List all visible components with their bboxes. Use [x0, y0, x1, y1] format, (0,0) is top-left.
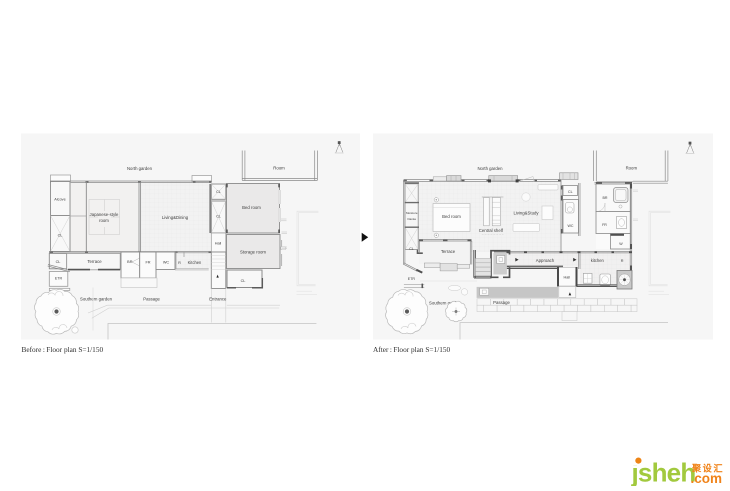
svg-text:Moisture: Moisture [406, 211, 418, 215]
svg-text:Storage room: Storage room [240, 250, 266, 255]
svg-text:W: W [619, 242, 623, 246]
svg-text:CL: CL [216, 190, 221, 194]
svg-text:Living&Study: Living&Study [513, 210, 539, 215]
svg-text:FR: FR [145, 260, 150, 264]
svg-text:.com: .com [691, 471, 723, 486]
svg-text:Bed room: Bed room [442, 214, 461, 219]
svg-text:Central shelf: Central shelf [479, 228, 504, 233]
svg-text:Danke: Danke [407, 217, 416, 221]
svg-text:After : Floor plan S=1/150: After : Floor plan S=1/150 [373, 345, 451, 354]
svg-text:R: R [621, 259, 624, 263]
svg-text:Kitchen: Kitchen [188, 260, 202, 265]
svg-text:North garden: North garden [477, 166, 503, 171]
svg-text:CL: CL [241, 279, 246, 283]
svg-text:WC: WC [163, 261, 170, 265]
svg-text:Before : Floor plan S=1/150: Before : Floor plan S=1/150 [22, 345, 104, 354]
svg-text:CL: CL [568, 190, 573, 194]
svg-text:Passage: Passage [143, 296, 160, 301]
svg-text:Alcove: Alcove [54, 198, 65, 202]
svg-text:CL: CL [56, 260, 61, 264]
svg-text:ETR: ETR [55, 277, 63, 281]
svg-text:room: room [99, 218, 109, 223]
svg-text:Terrace: Terrace [441, 249, 456, 254]
svg-text:ETR: ETR [408, 277, 416, 281]
svg-text:Room: Room [626, 165, 638, 170]
svg-text:Passage: Passage [493, 300, 510, 305]
svg-text:CL: CL [58, 234, 63, 238]
svg-text:Approach: Approach [536, 258, 555, 263]
svg-text:WC: WC [568, 224, 574, 228]
svg-text:Terrace: Terrace [87, 259, 102, 264]
svg-text:Entrance: Entrance [209, 297, 227, 302]
svg-text:Southern garden: Southern garden [80, 296, 113, 301]
svg-text:FR: FR [602, 223, 607, 227]
svg-text:North garden: North garden [127, 166, 153, 171]
svg-text:Japanese-style: Japanese-style [90, 212, 120, 217]
svg-text:CL: CL [409, 247, 414, 251]
svg-text:R: R [178, 261, 181, 265]
svg-text:BR: BR [603, 196, 608, 200]
svg-text:Hall: Hall [564, 275, 571, 279]
svg-text:CL: CL [216, 215, 221, 219]
svg-text:Hall: Hall [215, 241, 222, 245]
svg-text:Room: Room [273, 165, 285, 170]
svg-text:kitchen: kitchen [591, 258, 605, 263]
svg-text:Living&Dining: Living&Dining [162, 215, 189, 220]
svg-text:Bed room: Bed room [242, 205, 261, 210]
